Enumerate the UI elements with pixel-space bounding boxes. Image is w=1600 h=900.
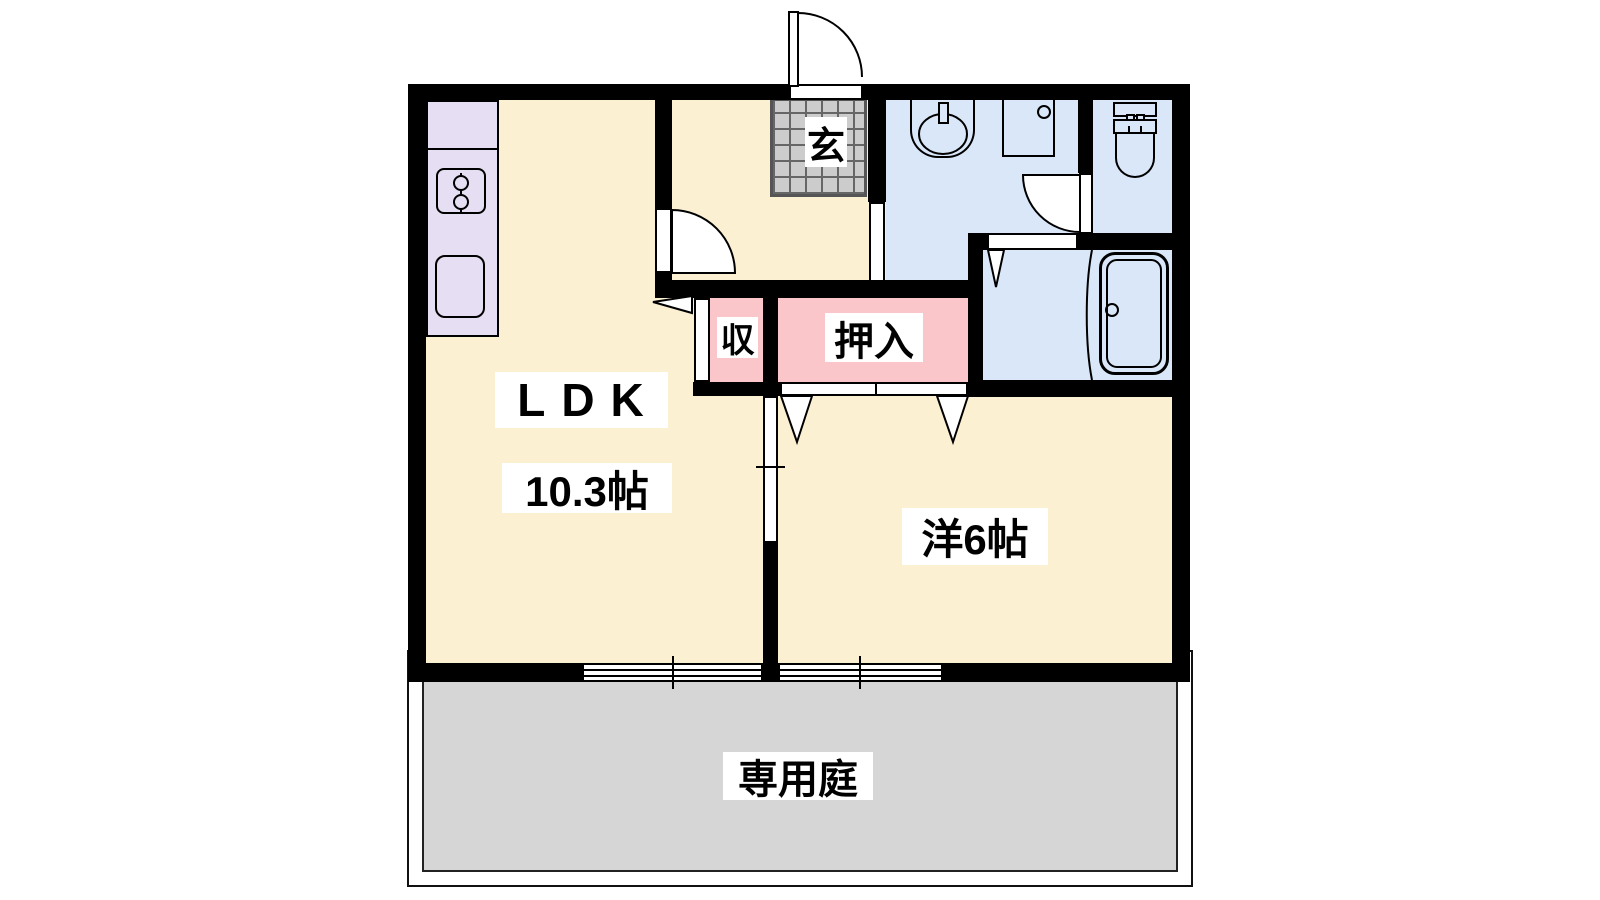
toilet-bowl-icon: [1115, 134, 1155, 178]
closet-small-text: 収: [721, 313, 755, 362]
ldk-label: LDK: [495, 372, 668, 428]
closet-oshiire-text: 押入: [834, 309, 914, 367]
entrance-door-leaf: [789, 12, 798, 86]
ldk-door-opening: [655, 208, 672, 273]
entrance-door-arc: [798, 13, 862, 77]
western-room-text: 洋6帖: [921, 506, 1028, 567]
washstand-icon: [910, 100, 975, 158]
wall-bathroom-bottom: [968, 380, 1172, 397]
floor-plan-canvas: LDK 10.3帖 洋6帖 押入 収 玄 専用庭: [0, 0, 1600, 900]
entrance-door-sill: [789, 84, 863, 100]
wall-closet-divider: [763, 298, 778, 382]
toilet-lid-notch: [1128, 126, 1142, 134]
entrance-text: 玄: [807, 115, 845, 170]
closet-small-label: 収: [717, 317, 758, 358]
ldk-label-text: LDK: [517, 373, 660, 427]
stove-icon: [436, 168, 486, 214]
window-western-room: [778, 663, 943, 682]
wall-window-divider: [763, 663, 778, 682]
ldk-size-label: 10.3帖: [502, 463, 672, 513]
wall-left: [408, 84, 426, 682]
wall-washroom-toilet: [1078, 100, 1093, 173]
kitchen-sink-icon: [435, 255, 485, 318]
wall-ldk-hall-upper: [655, 100, 672, 208]
washroom-door: [869, 202, 885, 282]
wall-closet-bottom: [693, 382, 780, 396]
kitchen-counter-divider: [427, 148, 498, 150]
closet-small-door: [694, 298, 710, 382]
closet-oshiire-label: 押入: [825, 313, 923, 362]
wall-ldk-western-lower: [763, 543, 778, 663]
garden-label: 専用庭: [723, 752, 873, 800]
wall-closet-top: [655, 280, 983, 298]
wall-bathroom-left: [968, 233, 983, 397]
bathtub-inner: [1106, 259, 1162, 368]
washing-machine-icon: [1002, 100, 1055, 157]
garden-text: 専用庭: [738, 747, 858, 805]
entrance-label: 玄: [805, 117, 847, 167]
window-ldk: [582, 663, 763, 682]
toilet-door-leaf: [1079, 173, 1093, 234]
oshiire-sliding-track: [780, 382, 968, 396]
bathroom-door: [987, 233, 1078, 250]
ldk-size-text: 10.3帖: [525, 458, 649, 519]
western-room-label: 洋6帖: [902, 508, 1048, 565]
wall-hall-washroom: [868, 100, 886, 202]
toilet-tank-icon: [1113, 102, 1157, 117]
wall-right: [1172, 84, 1190, 682]
oshiire-track-divider: [875, 384, 877, 394]
ldk-western-sliding-door: [763, 396, 778, 543]
